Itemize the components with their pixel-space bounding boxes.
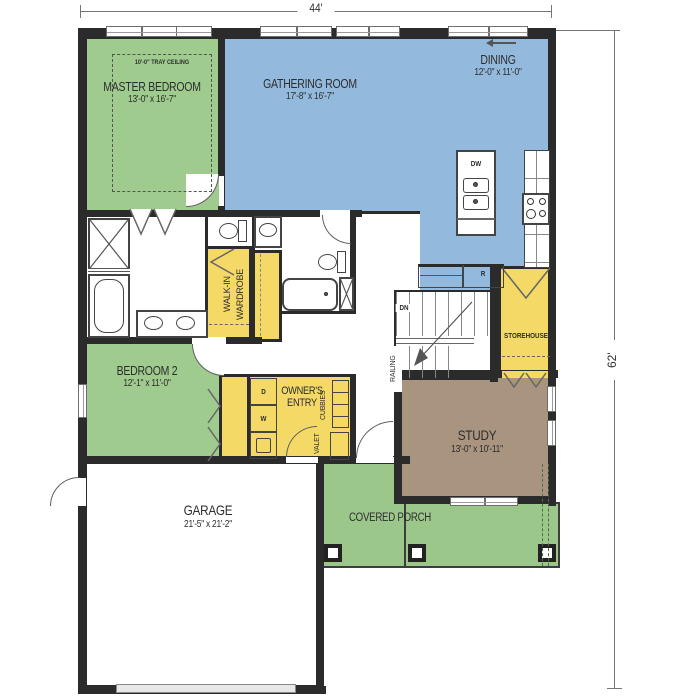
sink-drain xyxy=(473,199,478,204)
window xyxy=(547,386,556,412)
room-dims: 12'-1" x 11'-0" xyxy=(101,378,193,389)
window xyxy=(448,26,528,37)
window xyxy=(336,26,400,37)
room-name: STOREHOUSE xyxy=(502,332,551,340)
porch-post xyxy=(324,544,342,562)
dishwasher-label: DW xyxy=(459,160,493,168)
porch-beam-line xyxy=(548,464,549,566)
label-gathering-room: GATHERING ROOM 17'-8" x 16'-7" xyxy=(251,77,369,102)
range-stove xyxy=(522,193,550,225)
room-name: STUDY xyxy=(422,428,531,444)
label-owners-entry: OWNER'S ENTRY xyxy=(273,385,330,410)
floor-plan: DW R DN RAILING D W CUBBIES VALET xyxy=(0,0,700,700)
toilet-bowl xyxy=(219,223,238,239)
burner xyxy=(526,209,536,219)
washer-label: W xyxy=(252,415,275,423)
room-name-line2: ENTRY xyxy=(273,397,330,409)
room-name-line1: OWNER'S xyxy=(273,385,330,397)
double-door-storehouse xyxy=(502,372,548,390)
dimension-depth-value: 62' xyxy=(605,352,619,368)
room-name: DINING xyxy=(460,53,536,67)
bath2-tub xyxy=(282,278,338,311)
burner xyxy=(539,198,546,205)
porch-post xyxy=(408,544,426,562)
fridge-divider xyxy=(462,265,464,287)
room-dims: 13'-0" x 16'-7" xyxy=(93,94,211,105)
window xyxy=(450,497,518,506)
label-dining: DINING 12'-0" x 11'-0" xyxy=(460,53,536,78)
dimension-tick xyxy=(551,5,552,18)
room-name: GARAGE xyxy=(132,503,283,519)
garage-door xyxy=(116,684,296,693)
vanity-sink xyxy=(259,223,277,237)
room-garage xyxy=(84,460,320,688)
door-opening xyxy=(78,478,86,506)
refrigerator-label: R xyxy=(465,270,500,278)
label-bedroom2: BEDROOM 2 12'-1" x 11'-0" xyxy=(101,364,193,389)
room-name: COVERED PORCH xyxy=(340,512,441,525)
room-dims: 12'-0" x 11'-0" xyxy=(460,67,536,78)
toilet-tank xyxy=(238,220,247,242)
dimension-tick xyxy=(607,688,622,689)
dimension-depth-label: 62' xyxy=(605,340,623,380)
porch-beam-line xyxy=(542,464,543,566)
tub-drain xyxy=(324,292,328,296)
window xyxy=(78,384,87,418)
wall-segment xyxy=(218,28,225,176)
porch-post xyxy=(538,544,556,562)
door-pantry-corner xyxy=(500,266,552,302)
toilet-bowl xyxy=(318,254,337,270)
burner xyxy=(539,210,546,217)
valet-bench xyxy=(330,432,349,460)
shower-x xyxy=(88,218,130,270)
dimension-width-value: 44' xyxy=(309,1,322,15)
sink-drain xyxy=(473,182,478,187)
railing-label: RAILING xyxy=(390,346,402,392)
vanity-sink xyxy=(144,316,163,330)
dryer-label: D xyxy=(252,388,275,396)
label-walkin-line1: WALK-IN xyxy=(222,252,235,336)
door-opening xyxy=(192,337,226,344)
island-divider xyxy=(457,218,495,220)
slider-arrow xyxy=(492,42,516,44)
shower-door-line xyxy=(88,268,130,272)
dimension-tick xyxy=(80,5,81,18)
utility-sink-basin xyxy=(256,438,271,453)
tray-ceiling-outline xyxy=(112,54,212,192)
stairs-down-label: DN xyxy=(396,304,413,312)
door-arc-front-door xyxy=(356,421,393,458)
door-opening xyxy=(219,176,224,206)
master-tub-inner xyxy=(94,279,124,333)
double-door-master-bath xyxy=(128,208,178,238)
room-bedroom2-closet xyxy=(219,374,250,464)
burner xyxy=(527,198,534,205)
wall-segment xyxy=(350,374,356,464)
storehouse-shelf xyxy=(502,356,550,357)
label-master-bedroom: MASTER BEDROOM 13'-0" x 16'-7" xyxy=(93,80,211,105)
closet-rod xyxy=(260,254,261,336)
room-dims: 17'-8" x 16'-7" xyxy=(251,91,369,102)
dimension-tick xyxy=(556,30,620,31)
window xyxy=(547,420,556,446)
window xyxy=(106,26,212,37)
counter-shelf-line xyxy=(420,275,462,276)
door-arc-garage-side xyxy=(50,477,79,506)
room-dims: 13'-0" x 10'-11" xyxy=(422,444,531,455)
valet-label: VALET xyxy=(314,428,325,460)
bifold-bedroom2-closet xyxy=(207,388,223,464)
label-garage: GARAGE 21'-5" x 21'-2" xyxy=(132,503,283,530)
wall-segment xyxy=(78,337,262,344)
label-walkin-line2: WARDROBE xyxy=(235,252,248,336)
window xyxy=(260,26,332,37)
room-hall-closet xyxy=(252,250,282,342)
room-name: MASTER BEDROOM xyxy=(93,80,211,94)
room-name: GATHERING ROOM xyxy=(251,77,369,91)
cubbies-unit xyxy=(332,380,349,428)
tray-ceiling-label: 10'-0" TRAY CEILING xyxy=(120,59,204,66)
room-dims: 21'-5" x 21'-2" xyxy=(132,519,283,530)
dimension-width-label: 44' xyxy=(298,2,335,15)
vanity-sink xyxy=(176,316,195,330)
exterior-wall-garage-right xyxy=(316,460,324,690)
label-storehouse: STOREHOUSE xyxy=(502,332,551,340)
label-study: STUDY 13'-0" x 10'-11" xyxy=(422,428,531,455)
label-covered-porch: COVERED PORCH xyxy=(340,512,441,525)
exterior-wall-left xyxy=(78,28,86,694)
slider-arrow-head xyxy=(486,39,493,47)
linen-x xyxy=(339,277,354,311)
toilet-tank xyxy=(337,251,346,273)
room-name: BEDROOM 2 xyxy=(101,364,193,378)
